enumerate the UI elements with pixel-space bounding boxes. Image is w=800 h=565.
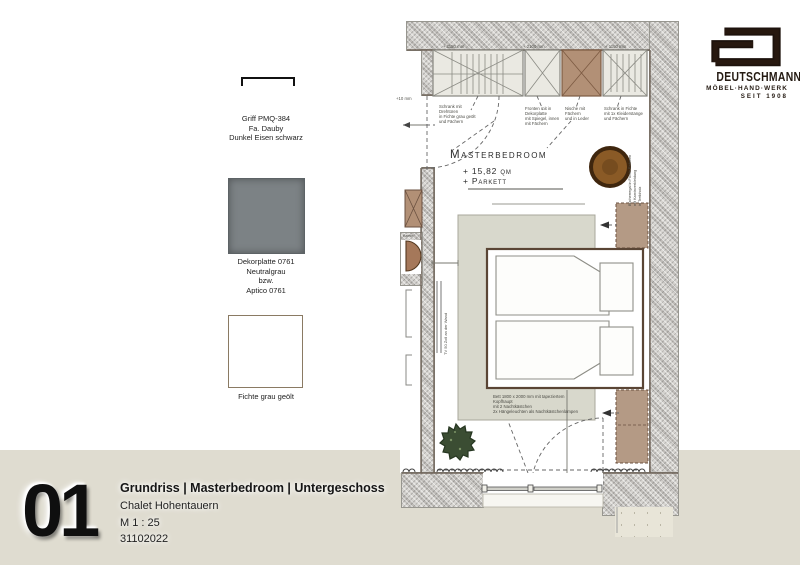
note-wardrobe2: Fronten mit in Dekorplattemit Spiegel, i… <box>525 106 565 126</box>
logo-craft: MÖBEL·HAND·WERK <box>700 85 788 92</box>
wood-swatch <box>228 315 303 388</box>
drawing-sheet: { "materials": { "handle": {"line1": "Gr… <box>0 0 800 565</box>
handle-label-line: Griff PMQ-384 <box>201 114 331 124</box>
drawing-scale: M 1 : 25 <box>120 517 160 529</box>
level-label: +10 mm <box>396 96 412 101</box>
note-sideboard: Bücherregal in Fichte Rahmen mit Kaminve… <box>628 126 643 206</box>
plant-icon <box>440 424 475 460</box>
room-name: Masterbedroom <box>450 149 547 161</box>
wood-label: Fichte grau geölt <box>201 392 331 402</box>
deutschmann-logo-icon <box>710 25 782 67</box>
dim-label: + 1150 mm <box>605 44 626 49</box>
handle-label-line: Fa. Dauby <box>201 124 331 134</box>
note-bed: Bett 1800 x 2000 mm mit tapeziertem Kopf… <box>493 394 583 414</box>
decor-label-line: bzw. <box>201 276 331 286</box>
handle-label: Griff PMQ-384 Fa. Dauby Dunkel Eisen sch… <box>201 114 331 143</box>
note-wardrobe1: Schrank mit Drehtürenin Fichte grau geöl… <box>439 104 481 124</box>
room-floor: + Parkett <box>463 176 507 186</box>
sheet-title: Grundriss | Masterbedroom | Untergeschos… <box>120 481 385 495</box>
note-kamin: Kamin <box>403 234 413 239</box>
sheet-number: 01 <box>22 474 96 548</box>
dim-label: + 2100 mm <box>523 44 545 49</box>
note-tv: TV 50 Zoll an der Wand <box>443 293 448 355</box>
decor-label-line: Dekorplatte 0761 <box>201 257 331 267</box>
decor-label-line: Neutralgrau <box>201 267 331 277</box>
handle-label-line: Dunkel Eisen schwarz <box>201 133 331 143</box>
handle-icon <box>241 77 295 86</box>
decor-panel-swatch <box>228 178 305 254</box>
plan-linework <box>395 8 695 548</box>
dim-label: + 1150 mm <box>443 44 464 49</box>
decor-label-line: Aptico 0761 <box>201 286 331 296</box>
note-wardrobe4: Schrank in Fichtemit 1x Kleiderstangeund… <box>604 106 646 121</box>
project-name: Chalet Hohentauern <box>120 500 218 512</box>
room-area: + 15,82 qm <box>463 166 512 176</box>
logo-brand: DEUTSCHMANN <box>716 69 790 84</box>
decor-panel-label: Dekorplatte 0761 Neutralgrau bzw. Aptico… <box>201 257 331 295</box>
logo-since: SEIT 1908 <box>700 93 788 100</box>
note-niche: Nische mit Fächernund in Leder <box>565 106 601 121</box>
floor-plan: Masterbedroom + 15,82 qm + Parkett + 115… <box>395 8 695 548</box>
drawing-date: 31102022 <box>120 533 168 545</box>
